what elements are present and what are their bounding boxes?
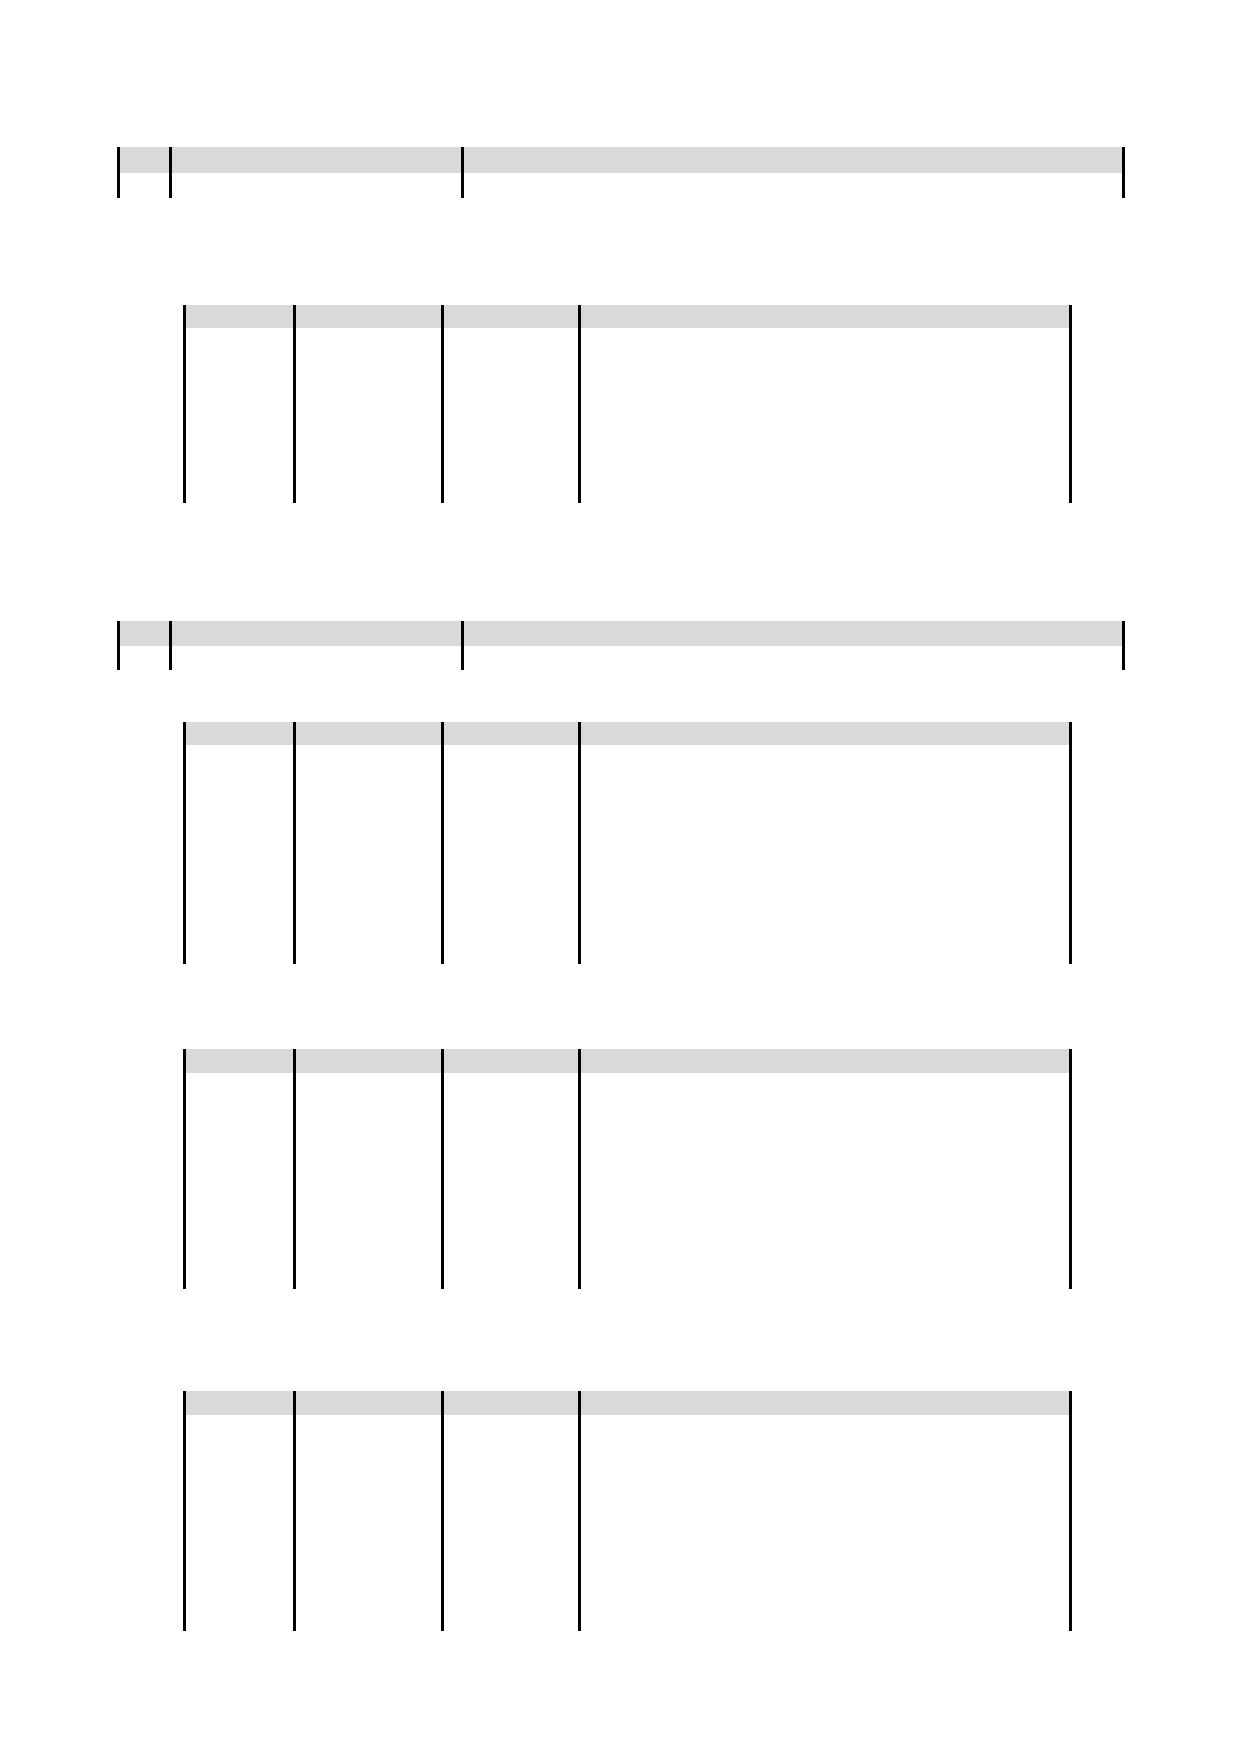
detail-table-3-column-border-4 xyxy=(578,1049,581,1289)
detail-table-3-header-cell-2 xyxy=(296,1049,441,1073)
detail-table-4-column-border-1 xyxy=(183,1391,186,1631)
detail-table-4 xyxy=(0,0,1240,1754)
record-header-table-1-header-cell-3 xyxy=(464,147,1122,173)
detail-table-4-column-border-5 xyxy=(1069,1391,1072,1631)
detail-table-1-column-border-4 xyxy=(578,305,581,503)
detail-table-2-column-border-5 xyxy=(1069,722,1072,964)
detail-table-2-header-cell-2 xyxy=(296,722,441,745)
record-header-table-2-column-border-4 xyxy=(1122,621,1125,670)
detail-table-3-column-border-1 xyxy=(183,1049,186,1289)
detail-table-4-column-border-2 xyxy=(293,1391,296,1631)
detail-table-2-header-cell-3 xyxy=(444,722,578,745)
record-header-table-1-header-cell-1 xyxy=(120,147,169,173)
detail-table-1-column-border-2 xyxy=(293,305,296,503)
detail-table-4-header-cell-3 xyxy=(444,1391,578,1415)
detail-table-2-column-border-4 xyxy=(578,722,581,964)
record-header-table-2-header-band xyxy=(117,621,1125,646)
detail-table-3-column-border-3 xyxy=(441,1049,444,1289)
detail-table-1-column-border-3 xyxy=(441,305,444,503)
detail-table-1-header-cell-4 xyxy=(581,305,1069,328)
detail-table-4-header-cell-2 xyxy=(296,1391,441,1415)
detail-table-4-column-border-3 xyxy=(441,1391,444,1631)
detail-table-3-header-cell-3 xyxy=(444,1049,578,1073)
detail-table-3-column-border-2 xyxy=(293,1049,296,1289)
detail-table-2 xyxy=(0,0,1240,1754)
detail-table-1-header-band xyxy=(183,305,1072,328)
detail-table-2-column-border-3 xyxy=(441,722,444,964)
record-header-table-1-column-border-4 xyxy=(1122,147,1125,198)
detail-table-1-header-cell-1 xyxy=(186,305,293,328)
record-header-table-1-header-cell-2 xyxy=(172,147,461,173)
record-header-table-2 xyxy=(0,0,1240,1754)
detail-table-3-header-band xyxy=(183,1049,1072,1073)
record-header-table-2-header-cell-2 xyxy=(172,621,461,646)
detail-table-2-header-band xyxy=(183,722,1072,745)
record-header-table-2-header-cell-1 xyxy=(120,621,169,646)
detail-table-2-header-cell-4 xyxy=(581,722,1069,745)
detail-table-3-header-cell-1 xyxy=(186,1049,293,1073)
detail-table-1-column-border-1 xyxy=(183,305,186,503)
record-header-table-1 xyxy=(0,0,1240,1754)
detail-table-1-column-border-5 xyxy=(1069,305,1072,503)
record-header-table-2-header-cell-3 xyxy=(464,621,1122,646)
record-header-table-1-column-border-3 xyxy=(461,147,464,198)
document-page xyxy=(0,0,1240,1754)
detail-table-4-header-cell-4 xyxy=(581,1391,1069,1415)
record-header-table-1-column-border-2 xyxy=(169,147,172,198)
detail-table-1 xyxy=(0,0,1240,1754)
detail-table-3 xyxy=(0,0,1240,1754)
detail-table-4-column-border-4 xyxy=(578,1391,581,1631)
detail-table-3-column-border-5 xyxy=(1069,1049,1072,1289)
detail-table-2-column-border-1 xyxy=(183,722,186,964)
detail-table-2-header-cell-1 xyxy=(186,722,293,745)
record-header-table-1-column-border-1 xyxy=(117,147,120,198)
record-header-table-1-header-band xyxy=(117,147,1125,173)
record-header-table-2-column-border-1 xyxy=(117,621,120,670)
detail-table-4-header-cell-1 xyxy=(186,1391,293,1415)
detail-table-2-column-border-2 xyxy=(293,722,296,964)
detail-table-4-header-band xyxy=(183,1391,1072,1415)
record-header-table-2-column-border-2 xyxy=(169,621,172,670)
detail-table-3-header-cell-4 xyxy=(581,1049,1069,1073)
detail-table-1-header-cell-3 xyxy=(444,305,578,328)
detail-table-1-header-cell-2 xyxy=(296,305,441,328)
record-header-table-2-column-border-3 xyxy=(461,621,464,670)
